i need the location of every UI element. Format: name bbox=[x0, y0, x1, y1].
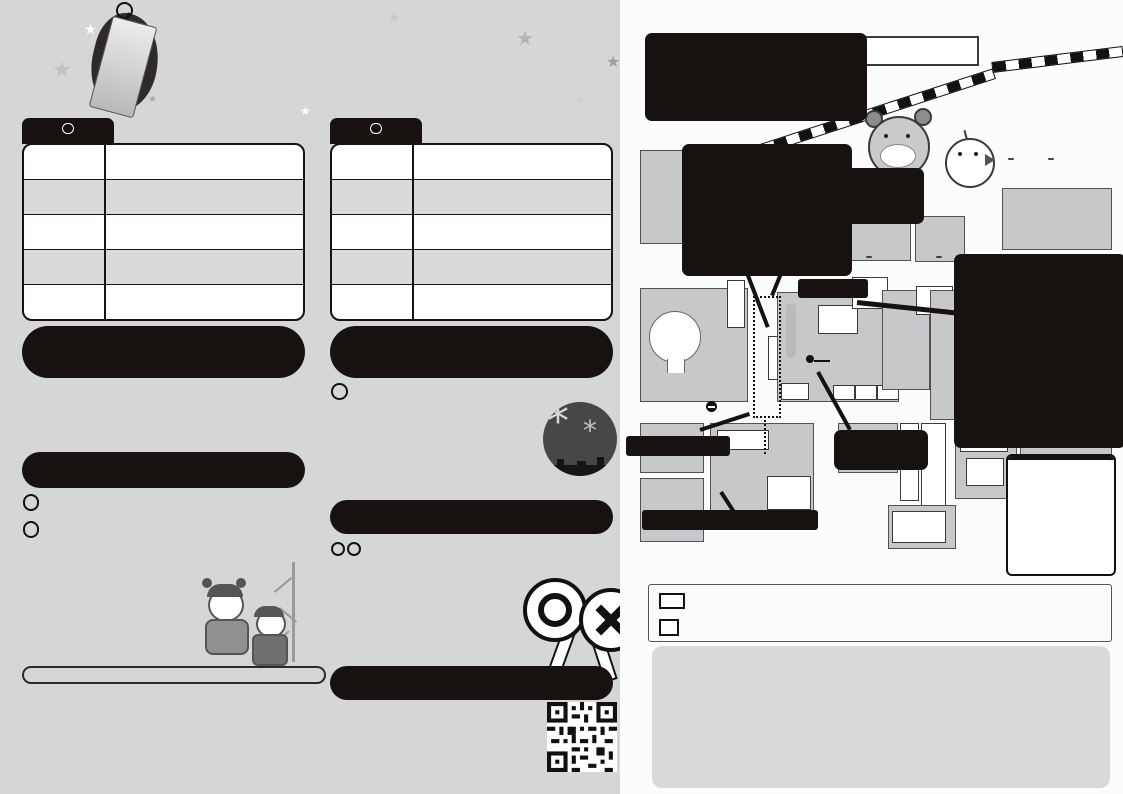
fireworks-illustration: * * bbox=[543, 402, 617, 476]
kids-header bbox=[22, 452, 305, 488]
maru-symbol bbox=[538, 593, 572, 627]
event-cell bbox=[106, 180, 303, 214]
kaga-sushi-label bbox=[834, 430, 928, 470]
house-box bbox=[781, 383, 809, 400]
page-title bbox=[148, 20, 618, 36]
mascot-eye bbox=[906, 134, 910, 138]
weekday-sunday bbox=[347, 542, 361, 556]
table-row bbox=[332, 179, 611, 214]
boy-hair bbox=[254, 606, 284, 617]
star-decoration: ★ bbox=[388, 10, 401, 26]
time-cell bbox=[332, 180, 414, 214]
traffic-signal-icon bbox=[866, 256, 872, 258]
traffic-signal-icon bbox=[1008, 158, 1014, 160]
history-box bbox=[652, 646, 1110, 788]
kidsland-callout-box bbox=[796, 168, 924, 224]
hall-parking-block bbox=[888, 505, 956, 549]
security-hq-dot bbox=[806, 355, 814, 363]
schedule-26 bbox=[22, 118, 305, 321]
circle-paddle bbox=[523, 578, 587, 642]
no-entry-icon bbox=[706, 401, 717, 412]
skyline bbox=[543, 465, 617, 476]
star-decoration: ★ bbox=[84, 22, 97, 38]
event-cell bbox=[414, 215, 611, 249]
time-cell bbox=[24, 285, 106, 319]
light-corridor-tunnel bbox=[786, 303, 796, 358]
skyline-building bbox=[597, 457, 604, 466]
light-corridor-label bbox=[798, 279, 868, 298]
weekday-sunday bbox=[370, 123, 382, 135]
suika-sale-box bbox=[818, 305, 858, 334]
table-row bbox=[24, 284, 303, 319]
parking-box bbox=[966, 458, 1004, 486]
children-illustration bbox=[190, 562, 310, 674]
event-cell bbox=[106, 215, 303, 249]
history-columns bbox=[652, 651, 1110, 656]
event-cell bbox=[414, 285, 611, 319]
house-box bbox=[855, 385, 877, 400]
star-decoration: ★ bbox=[574, 92, 585, 106]
building-block bbox=[1002, 188, 1112, 250]
railway-line bbox=[991, 46, 1123, 73]
security-hq-pointer bbox=[814, 360, 830, 362]
kids-hours-sun bbox=[22, 521, 40, 548]
time-cell bbox=[24, 250, 106, 284]
time-cell bbox=[24, 180, 106, 214]
weekday-saturday bbox=[331, 542, 345, 556]
event-cell bbox=[414, 180, 611, 214]
quiz-header bbox=[330, 500, 613, 534]
round-hall-shape bbox=[649, 311, 701, 363]
schedule-27 bbox=[330, 118, 613, 321]
time-cell bbox=[332, 145, 414, 179]
table-row bbox=[332, 214, 611, 249]
house-box bbox=[833, 385, 855, 400]
skyline-building bbox=[577, 461, 586, 466]
time-cell bbox=[332, 215, 414, 249]
hanabi-time bbox=[330, 383, 349, 408]
dance-contest-route-tail bbox=[764, 416, 766, 454]
flyer-page: ★ ★ ★ ★ ★ ★ ★ ★ bbox=[0, 0, 1123, 794]
station-label bbox=[863, 36, 979, 66]
event-cell bbox=[106, 250, 303, 284]
star-decoration: ★ bbox=[300, 104, 311, 118]
weekday-sunday bbox=[331, 383, 348, 400]
skyline-building bbox=[557, 459, 564, 466]
quiz-schedule-line bbox=[330, 542, 362, 563]
planetarium-label bbox=[642, 510, 818, 530]
dance-contest-route bbox=[753, 296, 781, 418]
schedule-26-date-badge bbox=[22, 118, 114, 144]
mascot-eye bbox=[884, 134, 888, 138]
mascot-muzzle bbox=[880, 144, 916, 168]
time-cell bbox=[332, 285, 414, 319]
notice-box bbox=[1006, 454, 1116, 576]
weekday-saturday bbox=[23, 494, 39, 510]
table-row bbox=[24, 145, 303, 179]
bamboo-leaf bbox=[274, 577, 292, 593]
table-row bbox=[332, 249, 611, 284]
bamboo-branch bbox=[292, 562, 295, 662]
event-cell bbox=[414, 250, 611, 284]
table-row bbox=[332, 145, 611, 179]
weekday-saturday bbox=[62, 123, 74, 135]
firework-burst: * bbox=[547, 402, 569, 447]
map-panel bbox=[620, 0, 1123, 794]
time-cell bbox=[332, 250, 414, 284]
kitchen-car-box bbox=[954, 254, 1123, 448]
firework-burst: * bbox=[583, 414, 597, 447]
building-block bbox=[640, 150, 684, 244]
kids-hours-sat bbox=[22, 494, 40, 521]
girl-kimono bbox=[205, 619, 249, 655]
event-cell bbox=[106, 145, 303, 179]
vote-header bbox=[330, 666, 613, 700]
table-row bbox=[332, 284, 611, 319]
traffic-signal-icon bbox=[1048, 158, 1054, 160]
schedule-26-table bbox=[22, 143, 305, 321]
kids-hours bbox=[22, 494, 40, 548]
event-cell bbox=[106, 285, 303, 319]
event-cell bbox=[414, 145, 611, 179]
road-closed-symbol bbox=[659, 593, 685, 609]
star-decoration: ★ bbox=[516, 26, 534, 50]
traffic-signal-icon bbox=[936, 256, 942, 258]
visitor-notes-box bbox=[22, 666, 326, 684]
map-legend bbox=[648, 584, 1112, 642]
notice-body bbox=[1008, 460, 1114, 468]
qr-code bbox=[547, 702, 617, 772]
dance-contest-label bbox=[626, 436, 730, 456]
schedule-27-table bbox=[330, 143, 613, 321]
schedule-27-date-badge bbox=[330, 118, 422, 144]
weekday-sunday bbox=[23, 521, 39, 537]
time-cell bbox=[24, 145, 106, 179]
star-decoration: ★ bbox=[148, 94, 157, 105]
parking-symbol bbox=[659, 619, 679, 636]
mascot-eye bbox=[958, 152, 962, 156]
hikari-header bbox=[22, 326, 305, 378]
mascot-beak bbox=[985, 154, 995, 166]
table-row bbox=[24, 249, 303, 284]
parking-box bbox=[767, 476, 811, 510]
parking-box bbox=[892, 511, 946, 543]
table-row bbox=[24, 179, 303, 214]
star-decoration: ★ bbox=[606, 52, 620, 71]
table-row bbox=[24, 214, 303, 249]
mascot-eye bbox=[974, 152, 978, 156]
boy-kimono bbox=[252, 634, 288, 666]
map-title-box bbox=[645, 33, 867, 121]
round-hall-stem bbox=[667, 359, 685, 373]
mascot-bird bbox=[945, 130, 995, 188]
star-decoration: ★ bbox=[52, 58, 72, 83]
girl-hair bbox=[207, 584, 243, 597]
time-cell bbox=[24, 215, 106, 249]
hanabi-header bbox=[330, 326, 613, 378]
bicycle-parking-box bbox=[727, 280, 745, 328]
